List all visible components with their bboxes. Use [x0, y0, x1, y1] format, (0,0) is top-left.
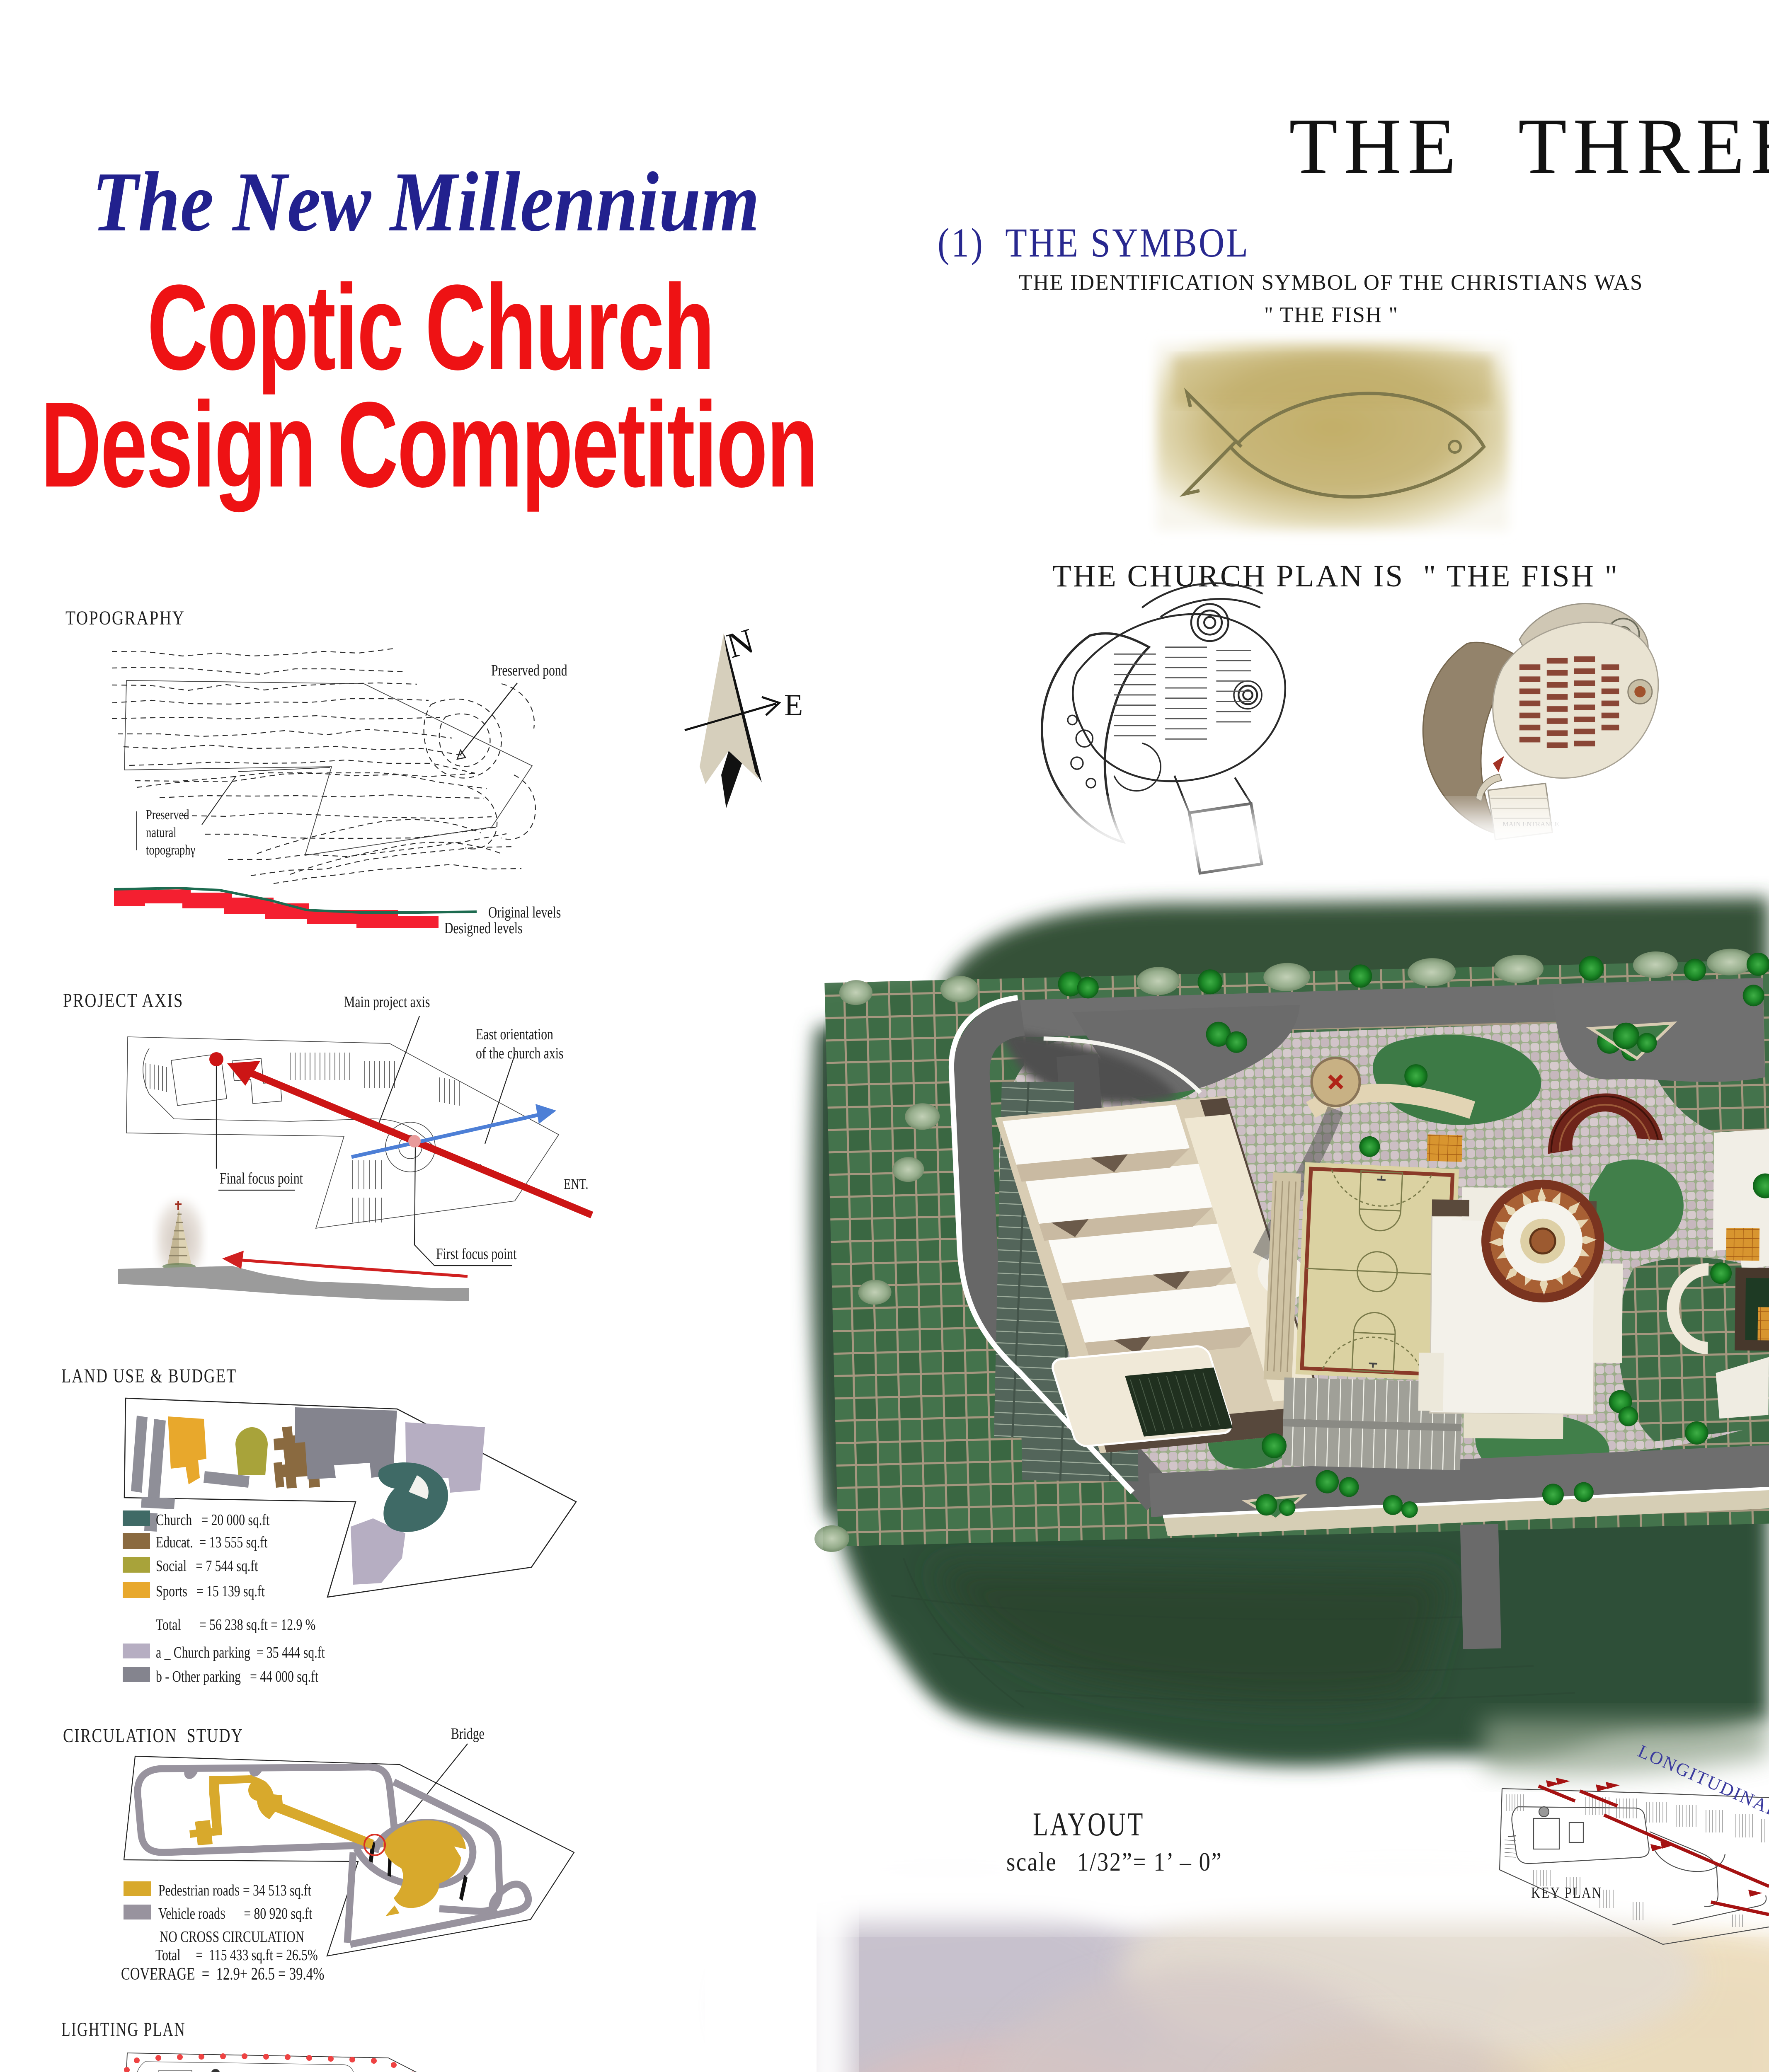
svg-text:E: E: [784, 688, 803, 722]
